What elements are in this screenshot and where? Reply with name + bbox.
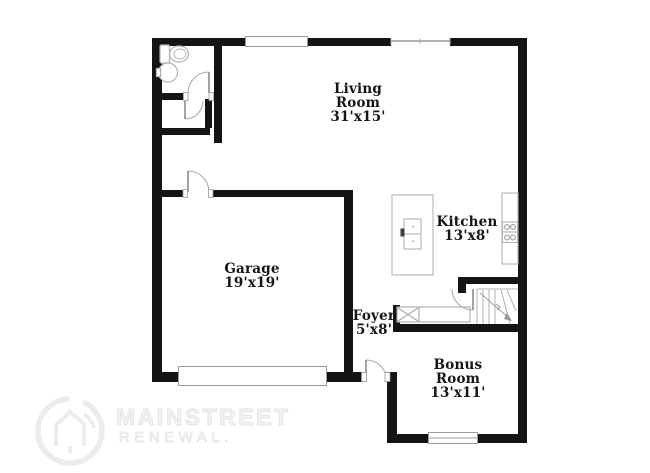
- stairs-icon: [477, 289, 518, 324]
- room-dims: 5'x8': [353, 323, 395, 337]
- kitchen-island: [392, 195, 433, 275]
- door-swing-bathroom: [188, 72, 209, 93]
- watermark-tagline: RENEWAL.: [119, 429, 233, 446]
- kitchen-counter: [502, 193, 518, 264]
- room-name: Foyer: [353, 309, 395, 323]
- room-name: Bonus: [430, 358, 485, 372]
- door-swing-closet: [185, 101, 203, 119]
- room-dims: 13'x11': [430, 386, 485, 400]
- sink-icon: [157, 63, 178, 82]
- room-dims: 31'x15': [330, 110, 385, 124]
- door-jambs: [183, 93, 390, 382]
- door-swing-entry: [366, 360, 387, 381]
- range-stove-icon: [503, 222, 518, 243]
- room-name: Room: [430, 372, 485, 386]
- watermark-logo-icon: [38, 399, 102, 463]
- toilet-icon: [160, 45, 189, 63]
- room-label-garage: Garage 19'x19': [224, 262, 279, 290]
- island-sink-icon: [401, 219, 422, 249]
- fixtures-layer: [0, 0, 650, 473]
- room-label-living-room: Living Room 31'x15': [330, 82, 385, 124]
- watermark-brand: MAINSTREET: [116, 404, 291, 431]
- room-name: Kitchen: [437, 215, 498, 229]
- floor-plan: Living Room 31'x15' Kitchen 13'x8' Garag…: [0, 0, 650, 473]
- room-dims: 13'x8': [437, 229, 498, 243]
- room-label-foyer: Foyer 5'x8': [353, 309, 395, 337]
- appliance-box-icon: [397, 307, 470, 322]
- window-thin-top: [391, 38, 450, 45]
- room-name: Room: [330, 96, 385, 110]
- room-dims: 19'x19': [224, 276, 279, 290]
- room-name: Living: [330, 82, 385, 96]
- door-swing-garage: [188, 171, 209, 192]
- room-label-kitchen: Kitchen 13'x8': [437, 215, 498, 243]
- room-name: Garage: [224, 262, 279, 276]
- room-label-bonus-room: Bonus Room 13'x11': [430, 358, 485, 400]
